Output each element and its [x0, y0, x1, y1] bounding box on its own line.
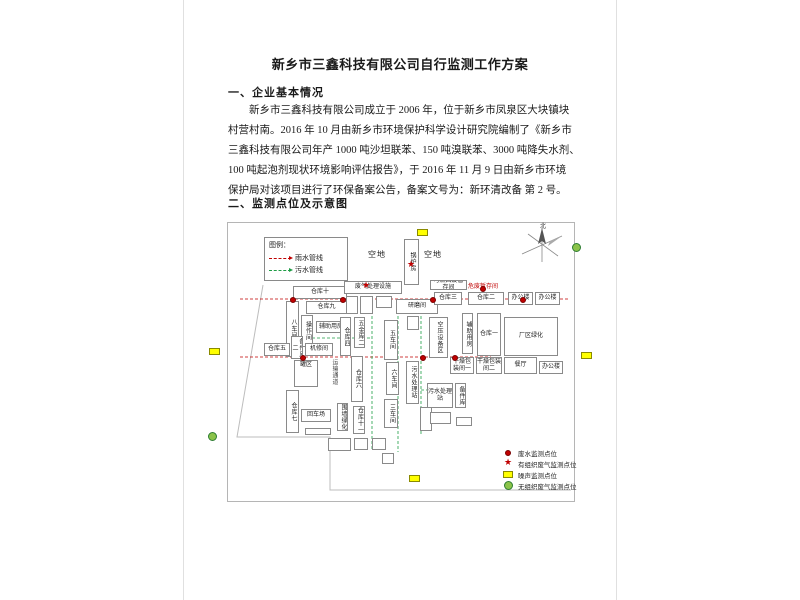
- building-box: 空压设备区: [429, 317, 448, 358]
- utility-box: [305, 428, 331, 435]
- building-box: 仓库十一: [353, 406, 365, 434]
- star-legend-icon: ★: [503, 459, 513, 468]
- stack-gas-monitoring-point: ★: [406, 261, 416, 270]
- wastewater-monitoring-point: [480, 286, 486, 292]
- building-box: 可燃固废暂存间: [430, 280, 467, 290]
- monitoring-legend-item: 无组织废气监测点位: [503, 480, 577, 491]
- utility-box: [382, 453, 394, 464]
- fugitive-gas-monitoring-point: [572, 243, 581, 252]
- wastewater-monitoring-point: [340, 297, 346, 303]
- utility-box: [354, 438, 368, 450]
- utility-box: [456, 417, 472, 426]
- star-symbol: ★: [503, 459, 513, 468]
- building-box: 餐厅: [504, 357, 537, 374]
- dot-legend-icon: [503, 450, 513, 456]
- wastewater-monitoring-point: [300, 355, 306, 361]
- wastewater-monitoring-point: [420, 355, 426, 361]
- building-box: 回车场: [301, 409, 331, 422]
- building-box: 三车间: [384, 399, 398, 428]
- site-layout-diagram: 图例： 雨水管线污水管线 北 废水监测点位★有组织废气监测点位噪声监测点位无组织…: [0, 0, 800, 600]
- utility-box: [346, 296, 358, 314]
- building-box: 辅助用房: [462, 313, 473, 354]
- noise-monitoring-point: [417, 229, 428, 236]
- utility-box: [372, 438, 386, 450]
- compass-icon: [518, 224, 566, 264]
- utility-box: [430, 412, 451, 424]
- building-box: 仓库六: [351, 356, 363, 402]
- building-box: 污水处理站: [427, 383, 453, 408]
- building-box: 仓库十: [293, 286, 347, 299]
- building-box: 六车间: [386, 362, 399, 395]
- sewage-line-icon: [269, 270, 291, 271]
- building-box: 废气处理设施: [344, 281, 402, 294]
- building-box: 仓库二: [468, 292, 504, 305]
- monitoring-legend-label: 废水监测点位: [518, 448, 557, 458]
- stack-gas-monitoring-point: ★: [361, 282, 371, 291]
- wastewater-monitoring-point: [452, 355, 458, 361]
- monitoring-point-legend: 废水监测点位★有组织废气监测点位噪声监测点位无组织废气监测点位: [503, 447, 577, 491]
- open-area-label: 空地: [424, 249, 442, 260]
- pipeline-legend-label: 雨水管线: [295, 253, 323, 263]
- monitoring-legend-item: 废水监测点位: [503, 447, 577, 458]
- building-box: 干燥包装间二: [476, 357, 502, 374]
- building-box: 围墙绿化: [337, 403, 348, 431]
- building-box: 仓库七: [286, 390, 299, 433]
- utility-box: [328, 438, 351, 451]
- noise-monitoring-point: [581, 352, 592, 359]
- building-box: 仓库四: [340, 317, 351, 356]
- building-box: 运输通道: [329, 352, 338, 392]
- building-box: 五金库二: [354, 317, 365, 348]
- compass-north-label: 北: [540, 221, 546, 230]
- pipeline-legend: 图例： 雨水管线污水管线: [264, 237, 348, 281]
- building-box: 备件库: [455, 383, 466, 408]
- building-box: 罐区: [294, 360, 318, 387]
- utility-box: [376, 296, 392, 308]
- utility-box: [407, 316, 419, 330]
- open-area-label: 空地: [368, 249, 386, 260]
- rect-legend-icon: [503, 471, 513, 478]
- monitoring-legend-label: 噪声监测点位: [518, 470, 557, 480]
- dot-symbol: [505, 450, 511, 456]
- noise-monitoring-point: [209, 348, 220, 355]
- pipeline-legend-item: 污水管线: [269, 264, 343, 276]
- fugitive-gas-monitoring-point: [208, 432, 217, 441]
- utility-box: [360, 296, 373, 314]
- monitoring-legend-item: 噪声监测点位: [503, 469, 577, 480]
- pipeline-legend-label: 污水管线: [295, 265, 323, 275]
- circle-symbol: [504, 481, 513, 490]
- building-box: 污水处理站: [406, 361, 419, 404]
- wastewater-monitoring-point: [430, 297, 436, 303]
- building-box: 仓库三: [434, 292, 462, 305]
- wastewater-monitoring-point: [290, 297, 296, 303]
- building-box: 仓库一: [477, 313, 501, 356]
- wastewater-monitoring-point: [520, 297, 526, 303]
- pipeline-legend-title: 图例：: [269, 240, 343, 250]
- building-box: 仓库五: [264, 343, 290, 356]
- monitoring-legend-item: ★有组织废气监测点位: [503, 458, 577, 469]
- building-box: 办公楼: [539, 361, 563, 374]
- building-box: 仓库九: [306, 301, 347, 314]
- building-box: 厂区绿化: [504, 317, 558, 356]
- circle-legend-icon: [503, 481, 513, 490]
- monitoring-legend-label: 无组织废气监测点位: [518, 481, 577, 491]
- rainwater-line-icon: [269, 258, 291, 259]
- building-box: 五车间: [384, 320, 398, 360]
- building-box: 办公楼: [535, 292, 560, 305]
- monitoring-legend-label: 有组织废气监测点位: [518, 459, 577, 469]
- noise-monitoring-point: [409, 475, 420, 482]
- pipeline-legend-item: 雨水管线: [269, 252, 343, 264]
- rect-symbol: [503, 471, 513, 478]
